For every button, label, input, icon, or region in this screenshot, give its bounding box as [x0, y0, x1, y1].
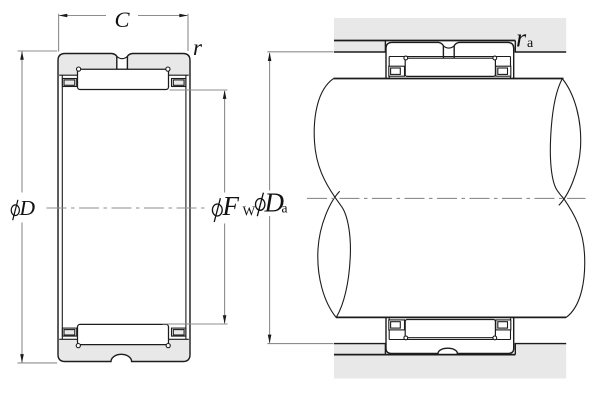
svg-text:W: W	[243, 204, 256, 219]
svg-text:C: C	[115, 7, 131, 32]
svg-text:D: D	[19, 196, 36, 220]
svg-text:a: a	[282, 200, 288, 215]
svg-text:a: a	[527, 36, 534, 51]
svg-text:F: F	[222, 191, 240, 221]
svg-text:r: r	[516, 23, 527, 52]
svg-text:r: r	[193, 35, 203, 60]
